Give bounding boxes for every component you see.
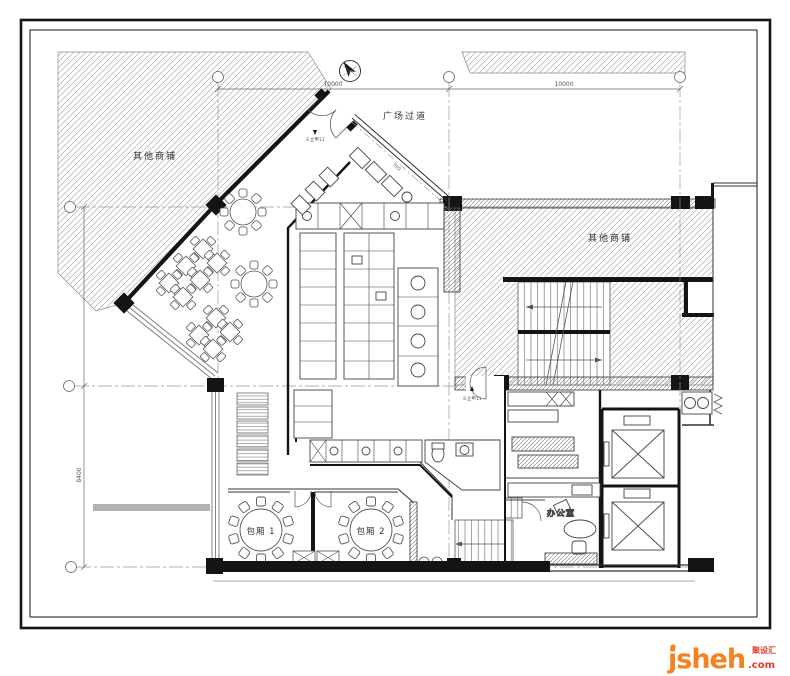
bottom-walls — [206, 558, 714, 581]
grid-bubble — [64, 381, 75, 392]
private-rooms: 包厢 1 包厢 2 — [228, 489, 442, 567]
watermark-tld: .com — [748, 660, 775, 671]
back-of-house: 办公室 — [505, 390, 600, 568]
shop-right-label: 其他商铺 — [588, 232, 632, 244]
watermark-cn: 聚设汇 — [751, 645, 776, 655]
grid-bubble — [675, 72, 686, 83]
grid-bubble — [213, 72, 224, 83]
canopy-line — [93, 504, 210, 511]
washroom-fixtures — [682, 390, 722, 425]
dim-top-right: 10000 — [554, 81, 573, 88]
svg-text:义立甲11: 义立甲11 — [462, 395, 481, 402]
shop-area-right: 其他商铺 — [455, 207, 714, 385]
watermark-logo: jsheh 聚设汇 .com — [667, 644, 776, 675]
svg-text:义立甲11: 义立甲11 — [305, 136, 324, 143]
room2-label: 包厢 2 — [356, 526, 385, 537]
floor-plan-page: 其他商铺 其他商铺 — [0, 0, 790, 676]
office-room: 办公室 — [522, 500, 597, 564]
stair-lower — [447, 498, 522, 570]
dim-left: 8400 — [76, 467, 83, 482]
grid-bubble — [66, 562, 77, 573]
dim-top-left: 10000 — [323, 81, 342, 88]
dim-entry-diagonal: 500 — [391, 162, 401, 172]
shop-band-top-right — [462, 52, 685, 73]
watermark-dot — [670, 644, 675, 649]
elevator-shafts — [602, 409, 679, 568]
watermark-brand: jsheh — [667, 644, 745, 675]
floor-plan-drawing: 其他商铺 其他商铺 — [0, 0, 790, 676]
grid-bubble — [444, 72, 455, 83]
shop-left-label: 其他商铺 — [133, 150, 177, 162]
stair-upper — [518, 282, 610, 385]
room1-label: 包厢 1 — [246, 526, 275, 537]
booth-seating — [237, 393, 268, 475]
elevation-marker-top: 义立甲11 — [305, 130, 324, 143]
grid-bubble — [65, 202, 76, 213]
plaza-corridor-label: 广场过道 — [383, 110, 427, 122]
north-arrow-icon — [340, 59, 361, 82]
office-label: 办公室 — [547, 508, 576, 519]
